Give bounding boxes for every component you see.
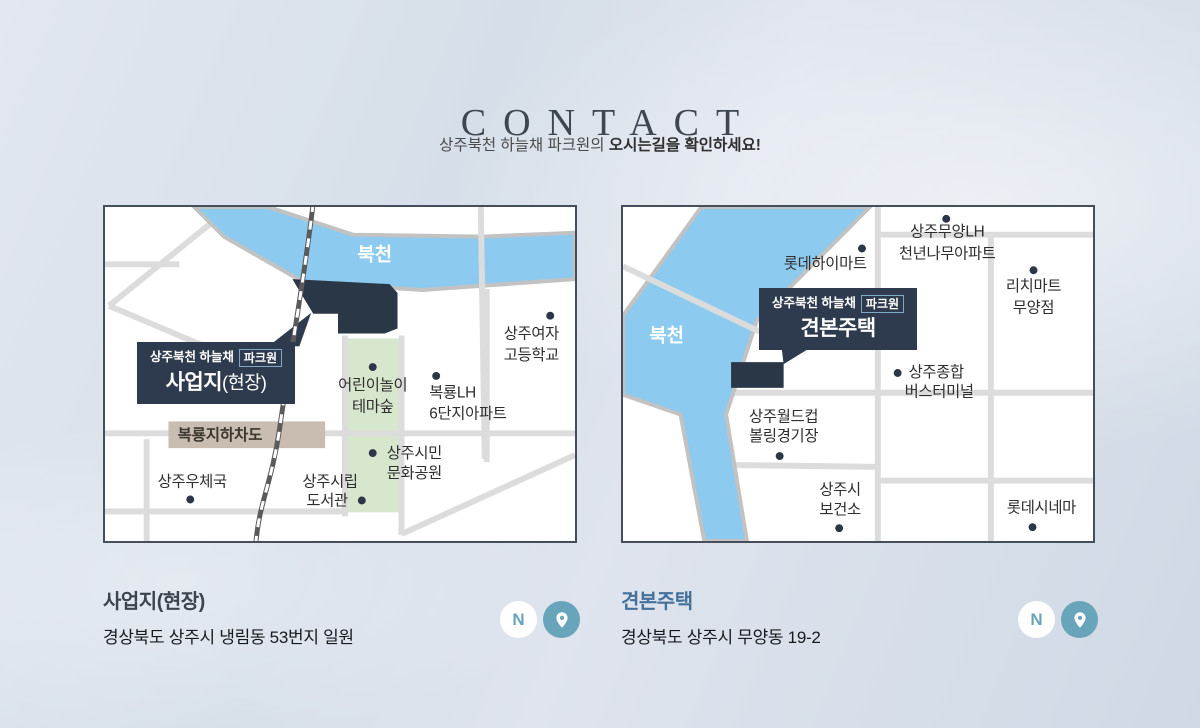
poi-label: 문화공원 — [387, 465, 442, 482]
poi-dot — [835, 524, 843, 532]
parkone-badge: 파크원 — [861, 295, 904, 313]
poi-label: 고등학교 — [504, 347, 560, 364]
location-pin-button[interactable] — [543, 601, 580, 638]
poi-label: 롯데시네마 — [1007, 499, 1076, 516]
poi-label: 상주우체국 — [158, 474, 227, 491]
subtitle-normal: 상주북천 하늘채 파크원의 — [439, 137, 609, 154]
parkone-badge: 파크원 — [239, 349, 282, 367]
poi-dot — [1029, 523, 1037, 531]
naver-n-icon: N — [1030, 610, 1042, 630]
poi-label: 상주시민 — [387, 445, 442, 462]
underpass-label: 복룡지하차도 — [178, 427, 263, 444]
model-house-block — [731, 362, 784, 388]
site-callout-title: 사업지 — [166, 371, 222, 394]
poi-dot — [1030, 266, 1038, 274]
naver-n-icon: N — [512, 610, 524, 630]
model-callout-title: 견본주택 — [800, 317, 875, 340]
model-house-callout: 상주북천 하늘채 파크원 견본주택 — [759, 288, 917, 350]
poi-label: 상주여자 — [504, 325, 560, 342]
poi-label: 복룡LH — [429, 385, 476, 402]
poi-dot — [858, 245, 866, 253]
model-map-graphic: 북천 롯데하이마트 상주무양LH 천년나무아파트 리치마트 무양점 상주종합 버… — [623, 207, 1093, 541]
poi-dot — [186, 496, 194, 504]
brand-name: 상주북천 하늘채 — [772, 296, 856, 312]
location-pin-icon — [1068, 608, 1092, 632]
poi-label: 6단지아파트 — [429, 405, 507, 422]
poi-dot — [546, 312, 554, 320]
model-house-info: 견본주택 경상북도 상주시 무양동 19-2 N — [621, 585, 1095, 648]
poi-label: 상주시립 — [302, 474, 357, 491]
site-map-links: N — [500, 601, 580, 638]
poi-labels: 롯데하이마트 상주무양LH 천년나무아파트 리치마트 무양점 상주종합 버스터미… — [749, 224, 1076, 519]
poi-dot — [369, 449, 377, 457]
location-pin-button[interactable] — [1061, 601, 1098, 638]
site-info: 사업지(현장) 경상북도 상주시 냉림동 53번지 일원 N — [103, 585, 577, 648]
site-polygon — [292, 279, 397, 333]
poi-dot — [894, 369, 902, 377]
brand-name: 상주북천 하늘채 — [150, 350, 234, 366]
poi-dot — [432, 372, 440, 380]
page-subtitle: 상주북천 하늘채 파크원의 오시는길을 확인하세요! — [0, 133, 1200, 155]
naver-map-button[interactable]: N — [1018, 601, 1055, 638]
subtitle-bold: 오시는길을 확인하세요! — [609, 137, 761, 154]
poi-label: 천년나무아파트 — [899, 245, 996, 262]
site-callout-suffix: (현장) — [222, 372, 266, 393]
poi-label: 상주시 — [819, 482, 860, 499]
poi-dot — [942, 215, 950, 223]
naver-map-button[interactable]: N — [500, 601, 537, 638]
poi-label: 버스터미널 — [905, 384, 974, 401]
poi-dot — [369, 363, 377, 371]
poi-label: 도서관 — [306, 492, 348, 509]
poi-label: 상주무양LH — [910, 224, 984, 241]
river-label: 북천 — [649, 324, 684, 345]
site-map: 복룡지하차도 북천 상주여자 고등학교 어린이놀이 테마숲 복룡LH 6단지아파… — [103, 205, 577, 543]
poi-label: 볼링경기장 — [749, 428, 818, 445]
poi-label: 어린이놀이 — [338, 377, 407, 394]
poi-label: 롯데하이마트 — [784, 255, 867, 272]
model-house-map: 북천 롯데하이마트 상주무양LH 천년나무아파트 리치마트 무양점 상주종합 버… — [621, 205, 1095, 543]
location-pin-icon — [550, 608, 574, 632]
poi-label: 상주월드컵 — [749, 408, 818, 425]
poi-dot — [776, 452, 784, 460]
poi-label: 리치마트 — [1006, 278, 1062, 295]
site-callout: 상주북천 하늘채 파크원 사업지(현장) — [137, 342, 295, 404]
river-label: 북천 — [357, 243, 392, 264]
poi-dot — [358, 497, 366, 505]
poi-label: 상주종합 — [909, 364, 965, 381]
model-map-links: N — [1018, 601, 1098, 638]
poi-label: 테마숲 — [352, 399, 394, 416]
model-callout-tail — [782, 348, 810, 364]
poi-label: 보건소 — [819, 501, 861, 518]
poi-label: 무양점 — [1013, 300, 1054, 317]
